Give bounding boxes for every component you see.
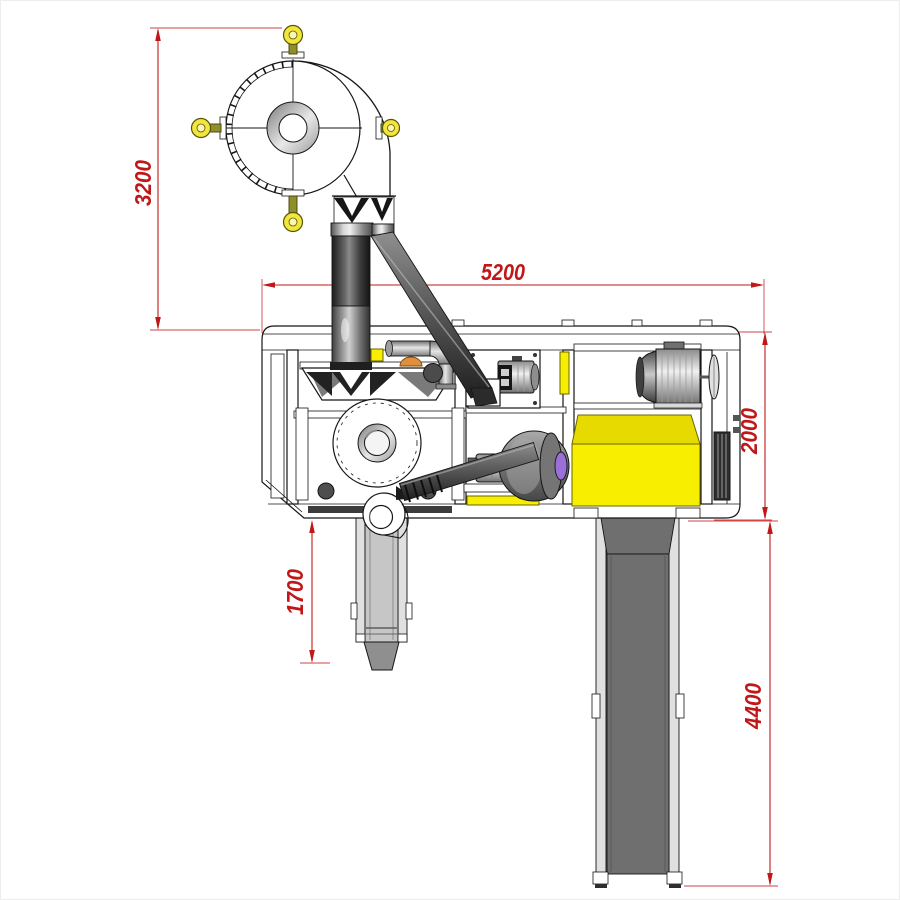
- guard-bolt-2: [733, 427, 740, 433]
- conveyor-left-hinge: [592, 694, 600, 718]
- cyclone-vortex-tube: [279, 114, 307, 142]
- frame-left-panel: [271, 354, 284, 498]
- conveyor-belt: [607, 554, 669, 874]
- dimension-label-1700: 1700: [282, 569, 308, 615]
- motor-body: [656, 349, 700, 405]
- frame-bolt-1: [318, 483, 334, 499]
- yellow-tab-left: [371, 349, 383, 361]
- machine-drawing-canvas: 3200 5200 2000 1700: [0, 0, 900, 900]
- conveyor-right-foot: [667, 872, 682, 884]
- dimension-label-4400: 4400: [740, 683, 766, 730]
- yellow-tab-mid: [560, 352, 569, 394]
- elbow-horizontal-tube: [388, 341, 430, 356]
- duct-end-elbow: [471, 388, 497, 406]
- discharge-conveyor: [592, 518, 684, 888]
- conveyor-right-hinge: [676, 694, 684, 718]
- pipe-bottom-flange: [330, 362, 372, 370]
- pipe-lower-section: [332, 306, 370, 364]
- chute-left-rail: [356, 518, 365, 642]
- technical-drawing-page: 3200 5200 2000 1700: [0, 0, 900, 900]
- guard-bolt-1: [733, 415, 740, 421]
- conveyor-belt-top: [601, 518, 675, 554]
- conveyor-mount-right: [676, 508, 700, 518]
- purple-coupling: [555, 452, 567, 480]
- scroll-inlet: [370, 506, 393, 529]
- motor-feet: [654, 403, 702, 408]
- conveyor-left-foot: [593, 872, 608, 884]
- dark-knob: [424, 364, 443, 383]
- chute-left-tab: [351, 603, 357, 619]
- dimension-label-3200: 3200: [130, 160, 156, 206]
- guard-front-face: [572, 444, 700, 506]
- conveyor-left-pad: [595, 884, 607, 888]
- conveyor-mount-left: [574, 508, 598, 518]
- dimension-label-5200: 5200: [481, 259, 525, 285]
- pipe-coupling-band: [331, 223, 373, 236]
- pipe-upper-section: [332, 236, 370, 306]
- mill-side-plate-left: [296, 408, 308, 500]
- chute-right-tab: [406, 603, 412, 619]
- chute-right-rail: [398, 518, 407, 642]
- mill-side-plate-right: [452, 408, 464, 500]
- conveyor-right-pad: [669, 884, 681, 888]
- guard-top-face: [572, 415, 700, 444]
